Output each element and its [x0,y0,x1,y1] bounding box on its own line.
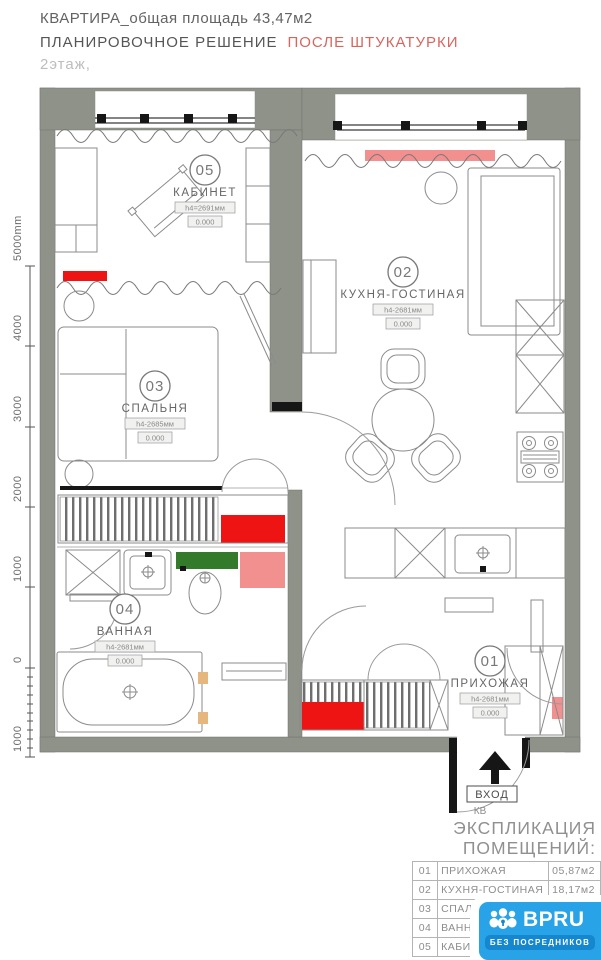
scale-ruler: 5000mm 4000 3000 2000 1000 0 1000 [12,215,35,757]
room-label-kitchen: 02 КУХНЯ-ГОСТИНАЯ h4-2681мм 0.000 [340,257,465,329]
bathroom-sink [124,550,171,595]
svg-text:КУХНЯ-ГОСТИНАЯ: КУХНЯ-ГОСТИНАЯ [340,289,465,301]
stove [517,432,563,482]
svg-text:h4-2681мм: h4-2681мм [471,695,509,704]
kitchen-furniture [303,168,565,652]
kitchen-counter [345,528,565,578]
svg-text:ВАННАЯ: ВАННАЯ [97,626,154,638]
legend-title: ЭКСПЛИКАЦИЯ ПОМЕЩЕНИЙ: [300,818,596,858]
hallway-furniture [300,606,563,735]
svg-text:h4=2691мм: h4=2691мм [185,204,225,213]
chair-right [406,428,465,487]
svg-text:0.000: 0.000 [196,218,215,227]
svg-text:05: 05 [196,162,215,179]
sofa [468,168,560,335]
people-lock-icon [488,907,518,933]
svg-text:0.000: 0.000 [116,657,135,666]
bpru-logo: BPRU БЕЗ ПОСРЕДНИКОВ [470,895,601,960]
svg-text:СПАЛЬНЯ: СПАЛЬНЯ [122,403,189,415]
logo-tagline: БЕЗ ПОСРЕДНИКОВ [485,935,595,950]
legend-title-line2: ПОМЕЩЕНИЙ: [300,838,596,858]
doors [272,402,395,505]
svg-text:0: 0 [12,656,24,663]
subtitle-main: ПЛАНИРОВОЧНОЕ РЕШЕНИЕ [40,34,277,51]
entrance: ВХОД КВ [449,737,530,817]
hall-wardrobe [300,680,448,730]
bedroom-furniture [58,291,288,543]
chair-top [381,349,425,389]
room-label-bathroom: 04 ВАННАЯ h4-2681мм 0.000 [95,594,155,666]
toilet [180,566,221,614]
svg-text:0.000: 0.000 [146,434,165,443]
floor-plan-drawing: 5000mm 4000 3000 2000 1000 0 1000 [0,80,601,840]
svg-text:01: 01 [481,653,500,670]
svg-text:h4-2681мм: h4-2681мм [384,306,422,315]
page-title: КВАРТИРА_общая площадь 43,47м2 [40,10,313,27]
page-subtitle: ПЛАНИРОВОЧНОЕ РЕШЕНИЕПОСЛЕ ШТУКАТУРКИ [40,34,459,51]
window-kitchen [333,94,527,140]
svg-text:1000: 1000 [12,556,24,582]
svg-text:ВХОД: ВХОД [475,789,509,801]
mirror [240,296,272,366]
nightstand [64,291,94,321]
svg-text:02: 02 [394,264,413,281]
svg-text:2000: 2000 [12,476,24,502]
svg-text:03: 03 [146,378,165,395]
room-label-hall: 01 ПРИХОЖАЯ h4-2681мм 0.000 [451,646,530,718]
svg-text:0.000: 0.000 [481,709,500,718]
legend-title-line1: ЭКСПЛИКАЦИЯ [300,818,596,838]
floor-plan-page: КВАРТИРА_общая площадь 43,47м2 ПЛАНИРОВО… [0,0,601,960]
room-label-bedroom: 03 СПАЛЬНЯ h4-2685мм 0.000 [122,371,189,443]
svg-text:КВ: КВ [474,806,487,817]
kabinet-furniture [55,148,270,262]
svg-text:h4-2681мм: h4-2681мм [106,643,144,652]
nightstand [65,460,93,488]
svg-text:04: 04 [116,601,135,618]
svg-text:1000: 1000 [12,726,24,752]
window-kabinet [95,91,255,128]
floor-label: 2этаж, [40,56,91,73]
shower-unit [66,550,120,595]
entry-closet [505,646,563,735]
svg-text:h4-2685мм: h4-2685мм [136,420,174,429]
svg-text:3000: 3000 [12,396,24,422]
svg-text:КАБИНЕТ: КАБИНЕТ [173,187,237,199]
logo-brand-text: BPRU [523,908,585,932]
legend-row: 01 ПРИХОЖАЯ 05,87м2 [413,862,601,881]
subtitle-accent: ПОСЛЕ ШТУКАТУРКИ [287,34,458,51]
bath-rug [222,663,286,680]
entrance-arrow-icon [479,751,511,770]
svg-text:4000: 4000 [12,315,24,341]
svg-text:5000mm: 5000mm [12,215,24,261]
svg-text:0.000: 0.000 [394,320,413,329]
svg-text:ПРИХОЖАЯ: ПРИХОЖАЯ [451,678,530,690]
